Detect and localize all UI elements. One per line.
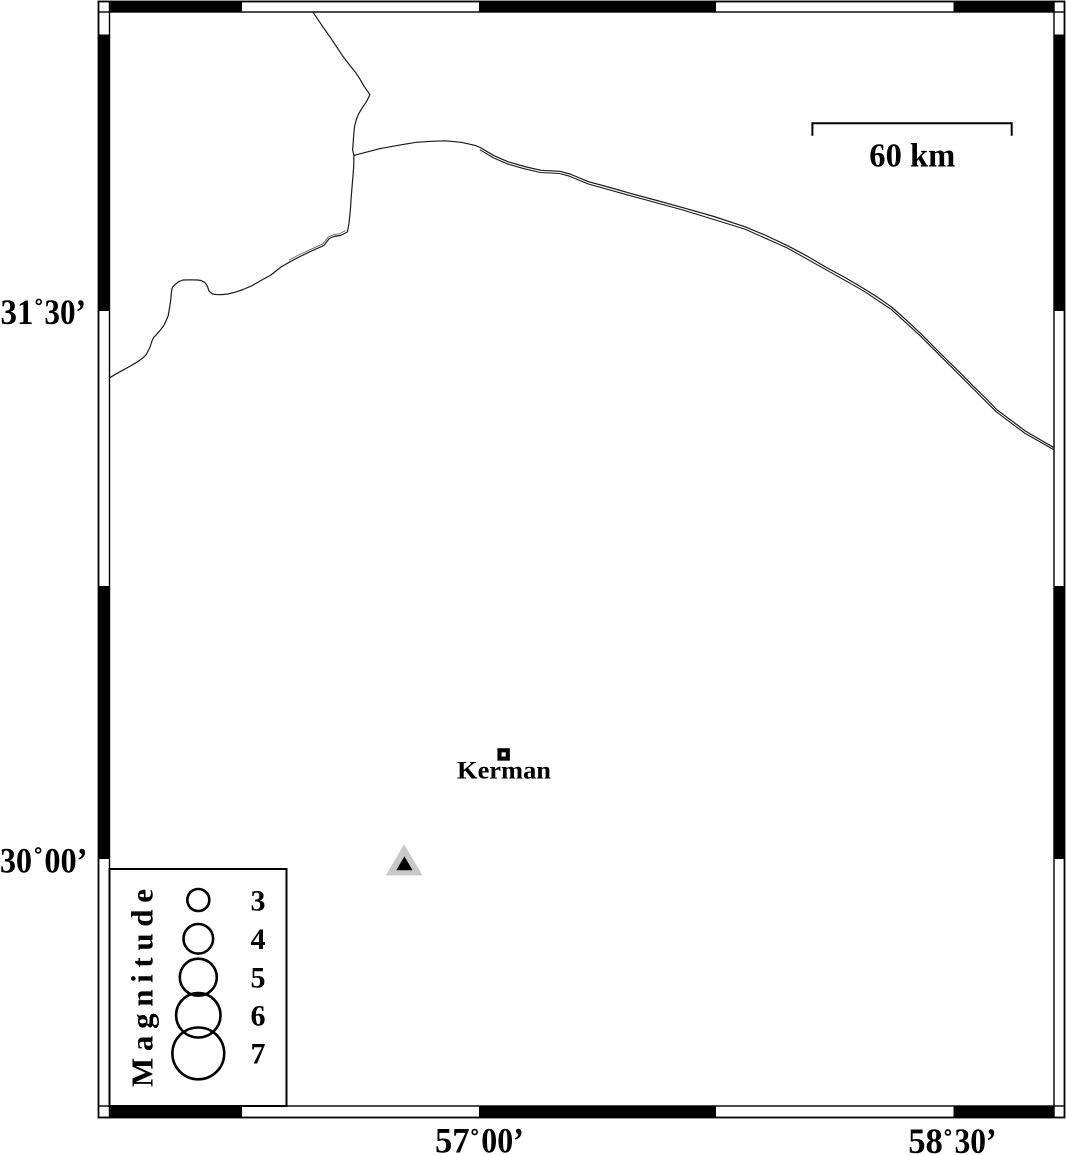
svg-text:30’: 30’ (955, 1121, 997, 1155)
svg-text:31: 31 (1, 292, 34, 332)
svg-text:5: 5 (251, 961, 266, 994)
svg-text:Kerman: Kerman (457, 758, 551, 785)
svg-text:4: 4 (251, 923, 266, 956)
svg-text:60 km: 60 km (869, 138, 955, 175)
svg-text:57: 57 (435, 1121, 470, 1155)
svg-text:58: 58 (908, 1121, 943, 1155)
svg-text:7: 7 (251, 1038, 266, 1071)
svg-text:30: 30 (0, 841, 32, 881)
svg-text:00’: 00’ (481, 1121, 524, 1155)
svg-text:00’: 00’ (44, 841, 87, 881)
svg-text:30’: 30’ (44, 292, 86, 332)
svg-text:3: 3 (251, 884, 266, 917)
svg-text:6: 6 (251, 999, 266, 1032)
